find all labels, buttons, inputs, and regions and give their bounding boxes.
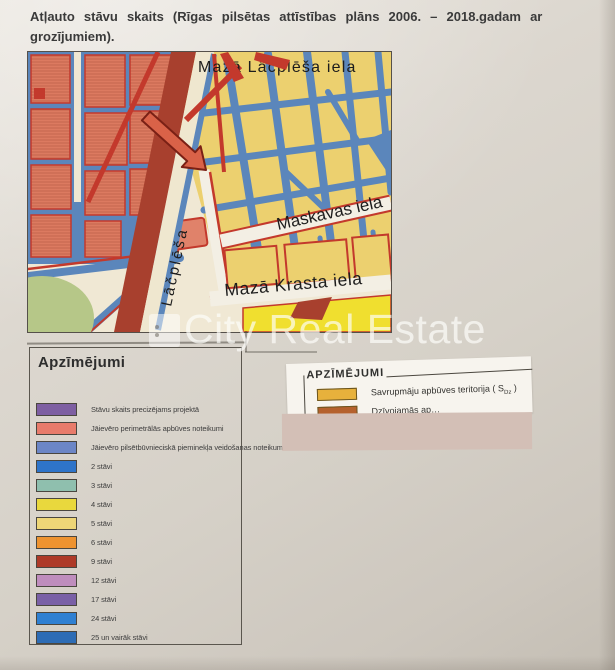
legend-item: 9 stāvi — [36, 555, 301, 568]
legend-item: 2 stāvi — [36, 460, 301, 473]
legend-item: 3 stāvi — [36, 479, 301, 492]
legend-item: 12 stāvi — [36, 574, 301, 587]
legend-item-label: Stāvu skaits precizējams projektā — [91, 405, 199, 414]
legend-item-label: 5 stāvi — [91, 519, 112, 528]
legend-item: 25 un vairāk stāvi — [36, 631, 301, 644]
inset-legend-item: Savrupmāju apbūves teritorija ( SDz ) — [317, 383, 517, 402]
photo-edge-shade — [0, 656, 615, 670]
legend-item-label: 25 un vairāk stāvi — [91, 633, 148, 642]
pasted-paper-band — [282, 412, 532, 451]
legend-item-label: 4 stāvi — [91, 500, 112, 509]
inset-legend-frame — [386, 369, 532, 378]
page-title: Atļauto stāvu skaits (Rīgas pilsētas att… — [30, 7, 590, 46]
legend-box: Apzīmējumi Stāvu skaits precizējams proj… — [29, 347, 242, 645]
legend-item-label: 12 stāvi — [91, 576, 116, 585]
legend-item: 4 stāvi — [36, 498, 301, 511]
legend-swatch — [36, 574, 77, 587]
legend-swatch — [36, 479, 77, 492]
legend-item: Jāievēro perimetrālās apbūves noteikumi — [36, 422, 301, 435]
legend-item-label: Jāievēro perimetrālās apbūves noteikumi — [91, 424, 223, 433]
legend-swatch — [36, 536, 77, 549]
inset-legend-swatch — [317, 388, 357, 401]
legend-swatch — [36, 441, 77, 454]
legend-item-label: Jāievēro pilsētbūvnieciskā pieminekļa ve… — [91, 443, 284, 452]
legend-item-label: 17 stāvi — [91, 595, 116, 604]
legend-item: 6 stāvi — [36, 536, 301, 549]
planning-map: Mazā Lāčplēša iela Maskavas iela Mazā Kr… — [27, 51, 392, 333]
legend-swatch — [36, 403, 77, 416]
legend-item-label: 3 stāvi — [91, 481, 112, 490]
map-red-square — [34, 88, 45, 99]
legend-swatch — [36, 460, 77, 473]
photo-artifact-line — [245, 351, 317, 353]
legend-swatch — [36, 612, 77, 625]
inset-legend-title: APZĪMĒJUMI — [306, 367, 384, 381]
legend-item: Stāvu skaits precizējams projektā — [36, 403, 301, 416]
page-title-line1: Atļauto stāvu skaits (Rīgas pilsētas att… — [30, 7, 590, 27]
photo-artifact-line — [245, 331, 247, 352]
legend-item-label: 24 stāvi — [91, 614, 116, 623]
inset-legend: APZĪMĒJUMI Savrupmāju apbūves teritorija… — [286, 356, 533, 420]
photo-edge-shade — [599, 0, 615, 670]
legend-swatch — [36, 593, 77, 606]
legend-item: 5 stāvi — [36, 517, 301, 530]
legend-swatch — [36, 631, 77, 644]
page-title-line2: grozījumiem). — [30, 27, 590, 47]
legend-title: Apzīmējumi — [30, 348, 241, 371]
inset-legend-item-label: Savrupmāju apbūves teritorija ( SDz ) — [371, 383, 517, 400]
legend-item-label: 6 stāvi — [91, 538, 112, 547]
legend-item: 17 stāvi — [36, 593, 301, 606]
legend-item-label: 2 stāvi — [91, 462, 112, 471]
photo-artifact-line — [27, 341, 246, 344]
legend-swatch — [36, 555, 77, 568]
planning-map-image: Mazā Lāčplēša iela Maskavas iela Mazā Kr… — [28, 52, 391, 332]
legend-item: 24 stāvi — [36, 612, 301, 625]
legend-swatch — [36, 422, 77, 435]
legend-swatch — [36, 498, 77, 511]
legend-items: Stāvu skaits precizējams projektā Jāievē… — [36, 403, 301, 644]
legend-item: Jāievēro pilsētbūvnieciskā pieminekļa ve… — [36, 441, 301, 454]
legend-swatch — [36, 517, 77, 530]
legend-item-label: 9 stāvi — [91, 557, 112, 566]
watermark-logo-dot — [155, 333, 159, 337]
listing-photo-page: Atļauto stāvu skaits (Rīgas pilsētas att… — [0, 0, 615, 670]
